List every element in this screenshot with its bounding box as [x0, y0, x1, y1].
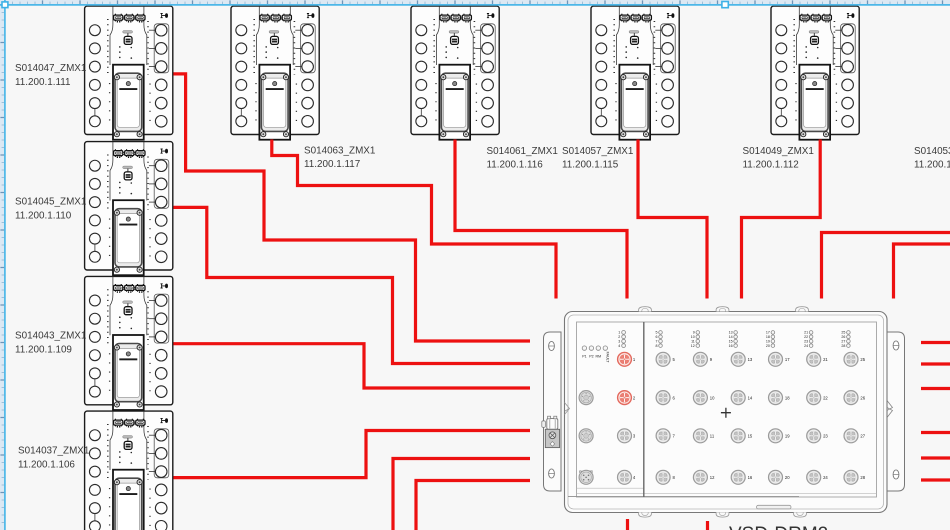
svg-text:13: 13 [729, 331, 733, 335]
svg-text:28: 28 [860, 475, 865, 480]
svg-text:24: 24 [823, 475, 828, 480]
svg-text:11.200.1.110: 11.200.1.110 [15, 211, 72, 222]
svg-text:9: 9 [693, 331, 695, 335]
svg-text:16: 16 [748, 475, 753, 480]
svg-text:11.200.1.111: 11.200.1.111 [15, 77, 71, 88]
svg-text:12: 12 [691, 344, 695, 348]
svg-text:S014063_ZMX1: S014063_ZMX1 [304, 145, 376, 156]
svg-text:8: 8 [656, 344, 658, 348]
svg-text:11: 11 [710, 434, 715, 439]
svg-text:23: 23 [823, 434, 828, 439]
svg-text:7: 7 [656, 340, 658, 344]
svg-text:13: 13 [748, 357, 753, 362]
svg-text:28: 28 [841, 344, 845, 348]
svg-text:27: 27 [860, 434, 865, 439]
svg-text:25: 25 [841, 331, 845, 335]
svg-text:3: 3 [618, 340, 620, 344]
svg-text:20: 20 [766, 344, 770, 348]
svg-text:19: 19 [785, 434, 790, 439]
svg-text:RM: RM [596, 355, 602, 359]
svg-text:S014037_ZMX1: S014037_ZMX1 [18, 446, 90, 457]
svg-text:14: 14 [729, 335, 733, 339]
svg-text:P2: P2 [589, 355, 593, 359]
svg-text:11.200.1.109: 11.200.1.109 [15, 345, 72, 356]
svg-text:16: 16 [729, 344, 733, 348]
svg-text:S014045_ZMX1: S014045_ZMX1 [15, 197, 87, 208]
svg-text:22: 22 [804, 335, 808, 339]
svg-text:18: 18 [785, 395, 790, 400]
svg-text:22: 22 [823, 395, 828, 400]
svg-text:15: 15 [748, 434, 753, 439]
svg-text:20: 20 [785, 475, 790, 480]
svg-text:17: 17 [785, 357, 790, 362]
svg-text:S014061_ZMX1: S014061_ZMX1 [487, 146, 559, 157]
svg-text:S014047_ZMX1: S014047_ZMX1 [15, 63, 87, 74]
svg-text:26: 26 [860, 395, 865, 400]
svg-text:11.200.1.113: 11.200.1.113 [914, 159, 950, 170]
svg-text:1: 1 [618, 331, 620, 335]
svg-text:17: 17 [766, 331, 770, 335]
svg-text:25: 25 [860, 357, 865, 362]
svg-text:P1: P1 [582, 355, 586, 359]
svg-text:11.200.1.116: 11.200.1.116 [487, 159, 544, 170]
svg-text:11: 11 [691, 340, 695, 344]
svg-text:11.200.1.115: 11.200.1.115 [562, 159, 619, 170]
svg-text:4: 4 [618, 344, 620, 348]
svg-text:21: 21 [823, 357, 828, 362]
svg-text:12: 12 [710, 475, 715, 480]
svg-text:FAULT: FAULT [606, 352, 610, 364]
svg-text:S014057_ZMX1: S014057_ZMX1 [562, 146, 634, 157]
svg-text:10: 10 [691, 335, 695, 339]
svg-text:6: 6 [656, 335, 658, 339]
svg-text:24: 24 [804, 344, 808, 348]
svg-text:S014043_ZMX1: S014043_ZMX1 [15, 331, 87, 342]
svg-text:26: 26 [841, 335, 845, 339]
svg-text:S014049_ZMX1: S014049_ZMX1 [743, 146, 815, 157]
svg-text:VSD-DRM2: VSD-DRM2 [729, 524, 828, 530]
svg-text:23: 23 [804, 340, 808, 344]
svg-text:15: 15 [729, 340, 733, 344]
svg-text:21: 21 [804, 331, 808, 335]
svg-text:11.200.1.106: 11.200.1.106 [18, 460, 75, 471]
svg-text:S014053_ZMX1: S014053_ZMX1 [914, 146, 950, 157]
svg-text:5: 5 [656, 331, 658, 335]
svg-text:2: 2 [618, 335, 620, 339]
svg-text:27: 27 [841, 340, 845, 344]
svg-text:11.200.1.117: 11.200.1.117 [304, 159, 360, 170]
svg-text:11.200.1.112: 11.200.1.112 [743, 159, 799, 170]
svg-text:19: 19 [766, 340, 770, 344]
svg-text:10: 10 [710, 395, 715, 400]
svg-text:14: 14 [748, 395, 753, 400]
svg-text:18: 18 [766, 335, 770, 339]
